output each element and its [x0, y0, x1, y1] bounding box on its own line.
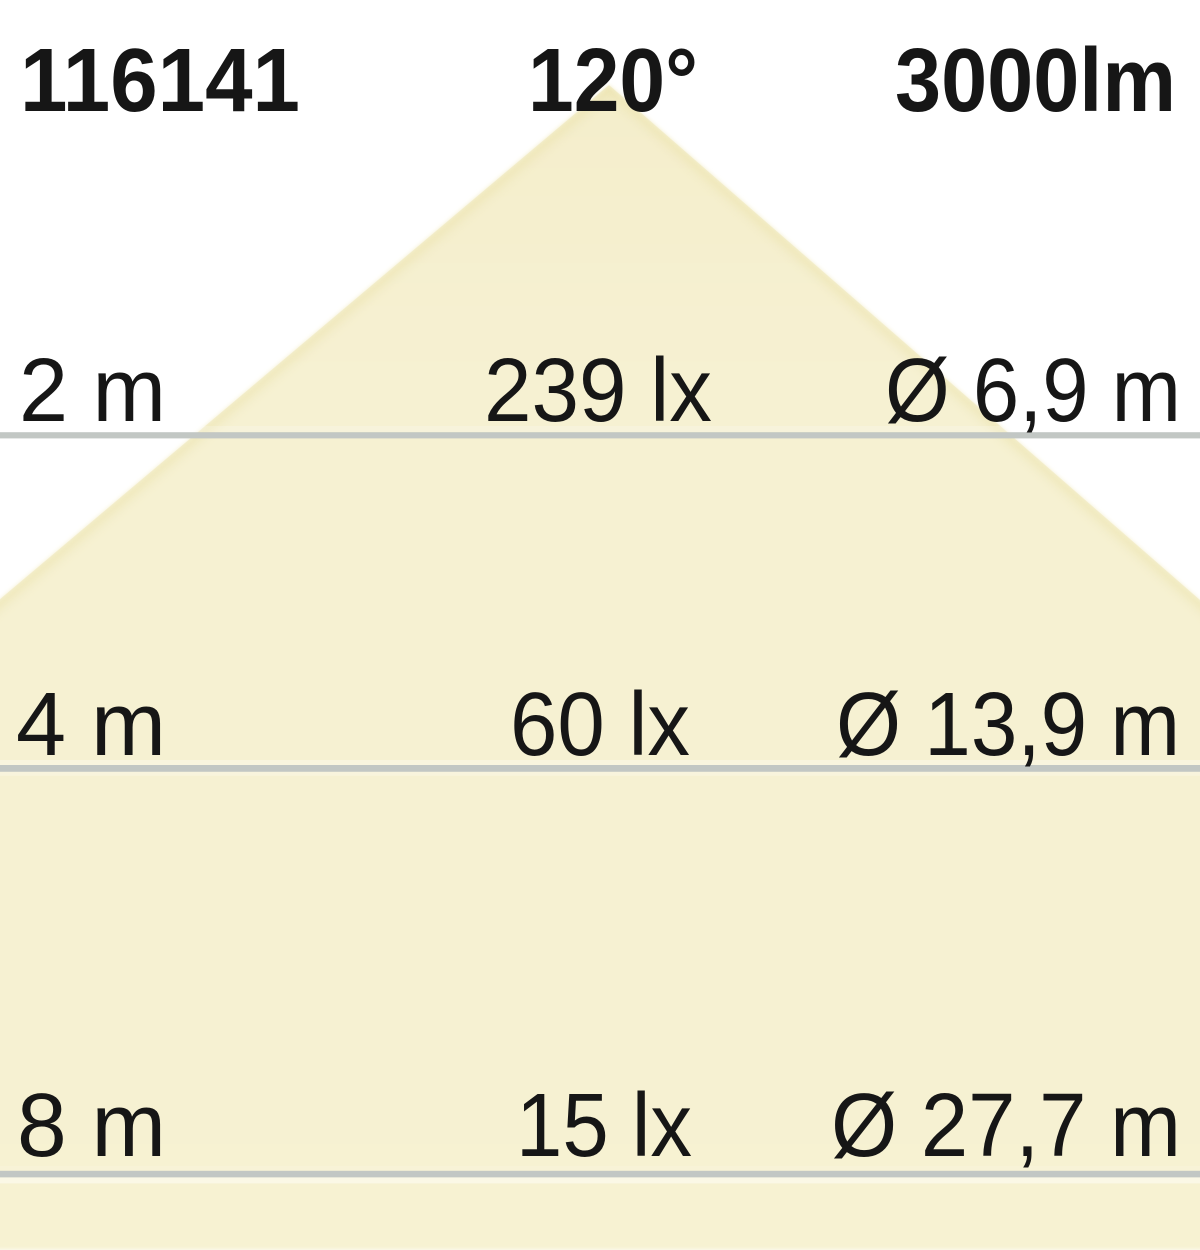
svg-text:Ø 6,9 m: Ø 6,9 m [885, 341, 1181, 441]
svg-text:2 m: 2 m [19, 341, 166, 441]
svg-text:116141: 116141 [20, 31, 300, 131]
svg-text:60 lx: 60 lx [510, 675, 690, 775]
svg-text:15 lx: 15 lx [516, 1076, 692, 1176]
svg-text:239 lx: 239 lx [484, 341, 712, 441]
svg-text:8 m: 8 m [17, 1076, 166, 1176]
svg-text:4 m: 4 m [16, 675, 166, 775]
svg-text:120°: 120° [528, 31, 698, 131]
svg-text:Ø 27,7 m: Ø 27,7 m [831, 1076, 1181, 1176]
svg-text:3000lm: 3000lm [895, 31, 1176, 131]
svg-text:Ø 13,9 m: Ø 13,9 m [836, 675, 1180, 775]
